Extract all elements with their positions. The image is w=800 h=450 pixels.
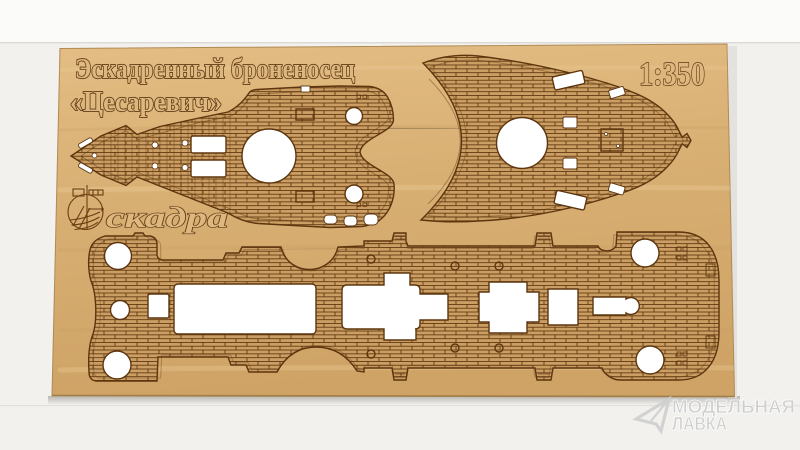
- svg-text:1:350: 1:350: [639, 56, 705, 93]
- svg-text:ЛАВКА: ЛАВКА: [672, 414, 727, 434]
- svg-text:скадра: скадра: [106, 201, 228, 234]
- svg-text:«Цесаревич»: «Цесаревич»: [70, 87, 222, 118]
- svg-text:Эскадренный броненосец: Эскадренный броненосец: [75, 54, 355, 85]
